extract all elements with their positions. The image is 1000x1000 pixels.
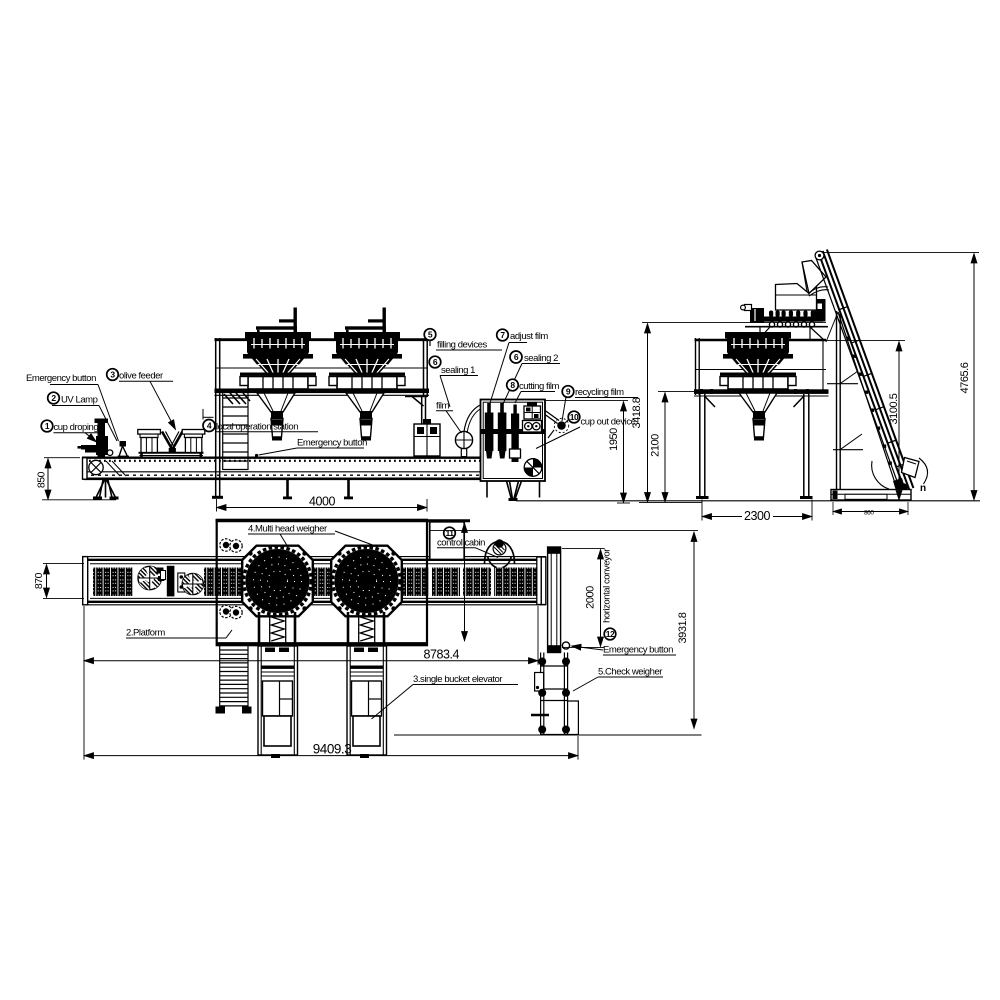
svg-text:olive feeder: olive feeder xyxy=(119,371,163,382)
svg-text:local operation station: local operation station xyxy=(216,422,298,433)
svg-text:1: 1 xyxy=(45,421,50,431)
svg-text:7: 7 xyxy=(500,330,505,340)
svg-text:Emergency button: Emergency button xyxy=(603,645,673,656)
svg-text:Emergency button: Emergency button xyxy=(26,373,96,384)
svg-text:control cabin: control cabin xyxy=(437,538,485,549)
svg-text:film: film xyxy=(436,401,450,412)
svg-text:2300: 2300 xyxy=(744,509,771,523)
svg-text:5.Check weigher: 5.Check weigher xyxy=(598,667,662,678)
svg-text:adjust film: adjust film xyxy=(510,331,548,342)
svg-text:3: 3 xyxy=(110,370,115,380)
svg-text:horizontal conveyor: horizontal conveyor xyxy=(602,549,613,623)
svg-text:5: 5 xyxy=(428,330,433,340)
svg-text:8: 8 xyxy=(510,380,515,390)
svg-text:860: 860 xyxy=(864,510,874,517)
svg-text:recycling film: recycling film xyxy=(575,387,624,398)
svg-text:6: 6 xyxy=(433,357,438,367)
svg-text:6: 6 xyxy=(514,352,519,362)
svg-text:2: 2 xyxy=(51,393,56,403)
svg-text:9: 9 xyxy=(566,387,571,397)
svg-text:2000: 2000 xyxy=(585,586,597,609)
svg-text:cup out device: cup out device xyxy=(581,417,636,428)
svg-text:4: 4 xyxy=(207,421,212,431)
svg-text:12: 12 xyxy=(606,629,615,639)
svg-text:9409.3: 9409.3 xyxy=(313,742,352,757)
svg-text:870: 870 xyxy=(33,572,45,589)
svg-text:8783.4: 8783.4 xyxy=(423,648,459,662)
svg-text:3.single bucket elevator: 3.single bucket elevator xyxy=(413,674,502,685)
svg-text:1950: 1950 xyxy=(608,428,620,451)
svg-text:4000: 4000 xyxy=(309,495,336,509)
svg-text:4765.6: 4765.6 xyxy=(959,362,971,393)
svg-text:4.Multi head weigher: 4.Multi head weigher xyxy=(248,524,327,535)
svg-text:10: 10 xyxy=(570,412,579,422)
svg-text:n: n xyxy=(920,483,926,494)
svg-text:11: 11 xyxy=(445,528,454,538)
svg-text:cup droping: cup droping xyxy=(54,422,99,433)
svg-text:3931.8: 3931.8 xyxy=(677,612,689,643)
svg-text:filling devices: filling devices xyxy=(437,340,487,351)
svg-text:2.Platform: 2.Platform xyxy=(126,628,165,639)
svg-text:3100.5: 3100.5 xyxy=(888,393,900,424)
svg-text:UV Lamp: UV Lamp xyxy=(61,395,98,406)
svg-text:2100: 2100 xyxy=(650,434,662,457)
svg-text:sealing 2: sealing 2 xyxy=(524,353,558,364)
svg-text:sealing 1: sealing 1 xyxy=(441,365,475,376)
svg-text:cutting film: cutting film xyxy=(519,381,560,392)
svg-text:3418.8: 3418.8 xyxy=(631,397,643,428)
svg-text:850: 850 xyxy=(36,471,48,488)
svg-text:Emergency button: Emergency button xyxy=(297,438,367,449)
